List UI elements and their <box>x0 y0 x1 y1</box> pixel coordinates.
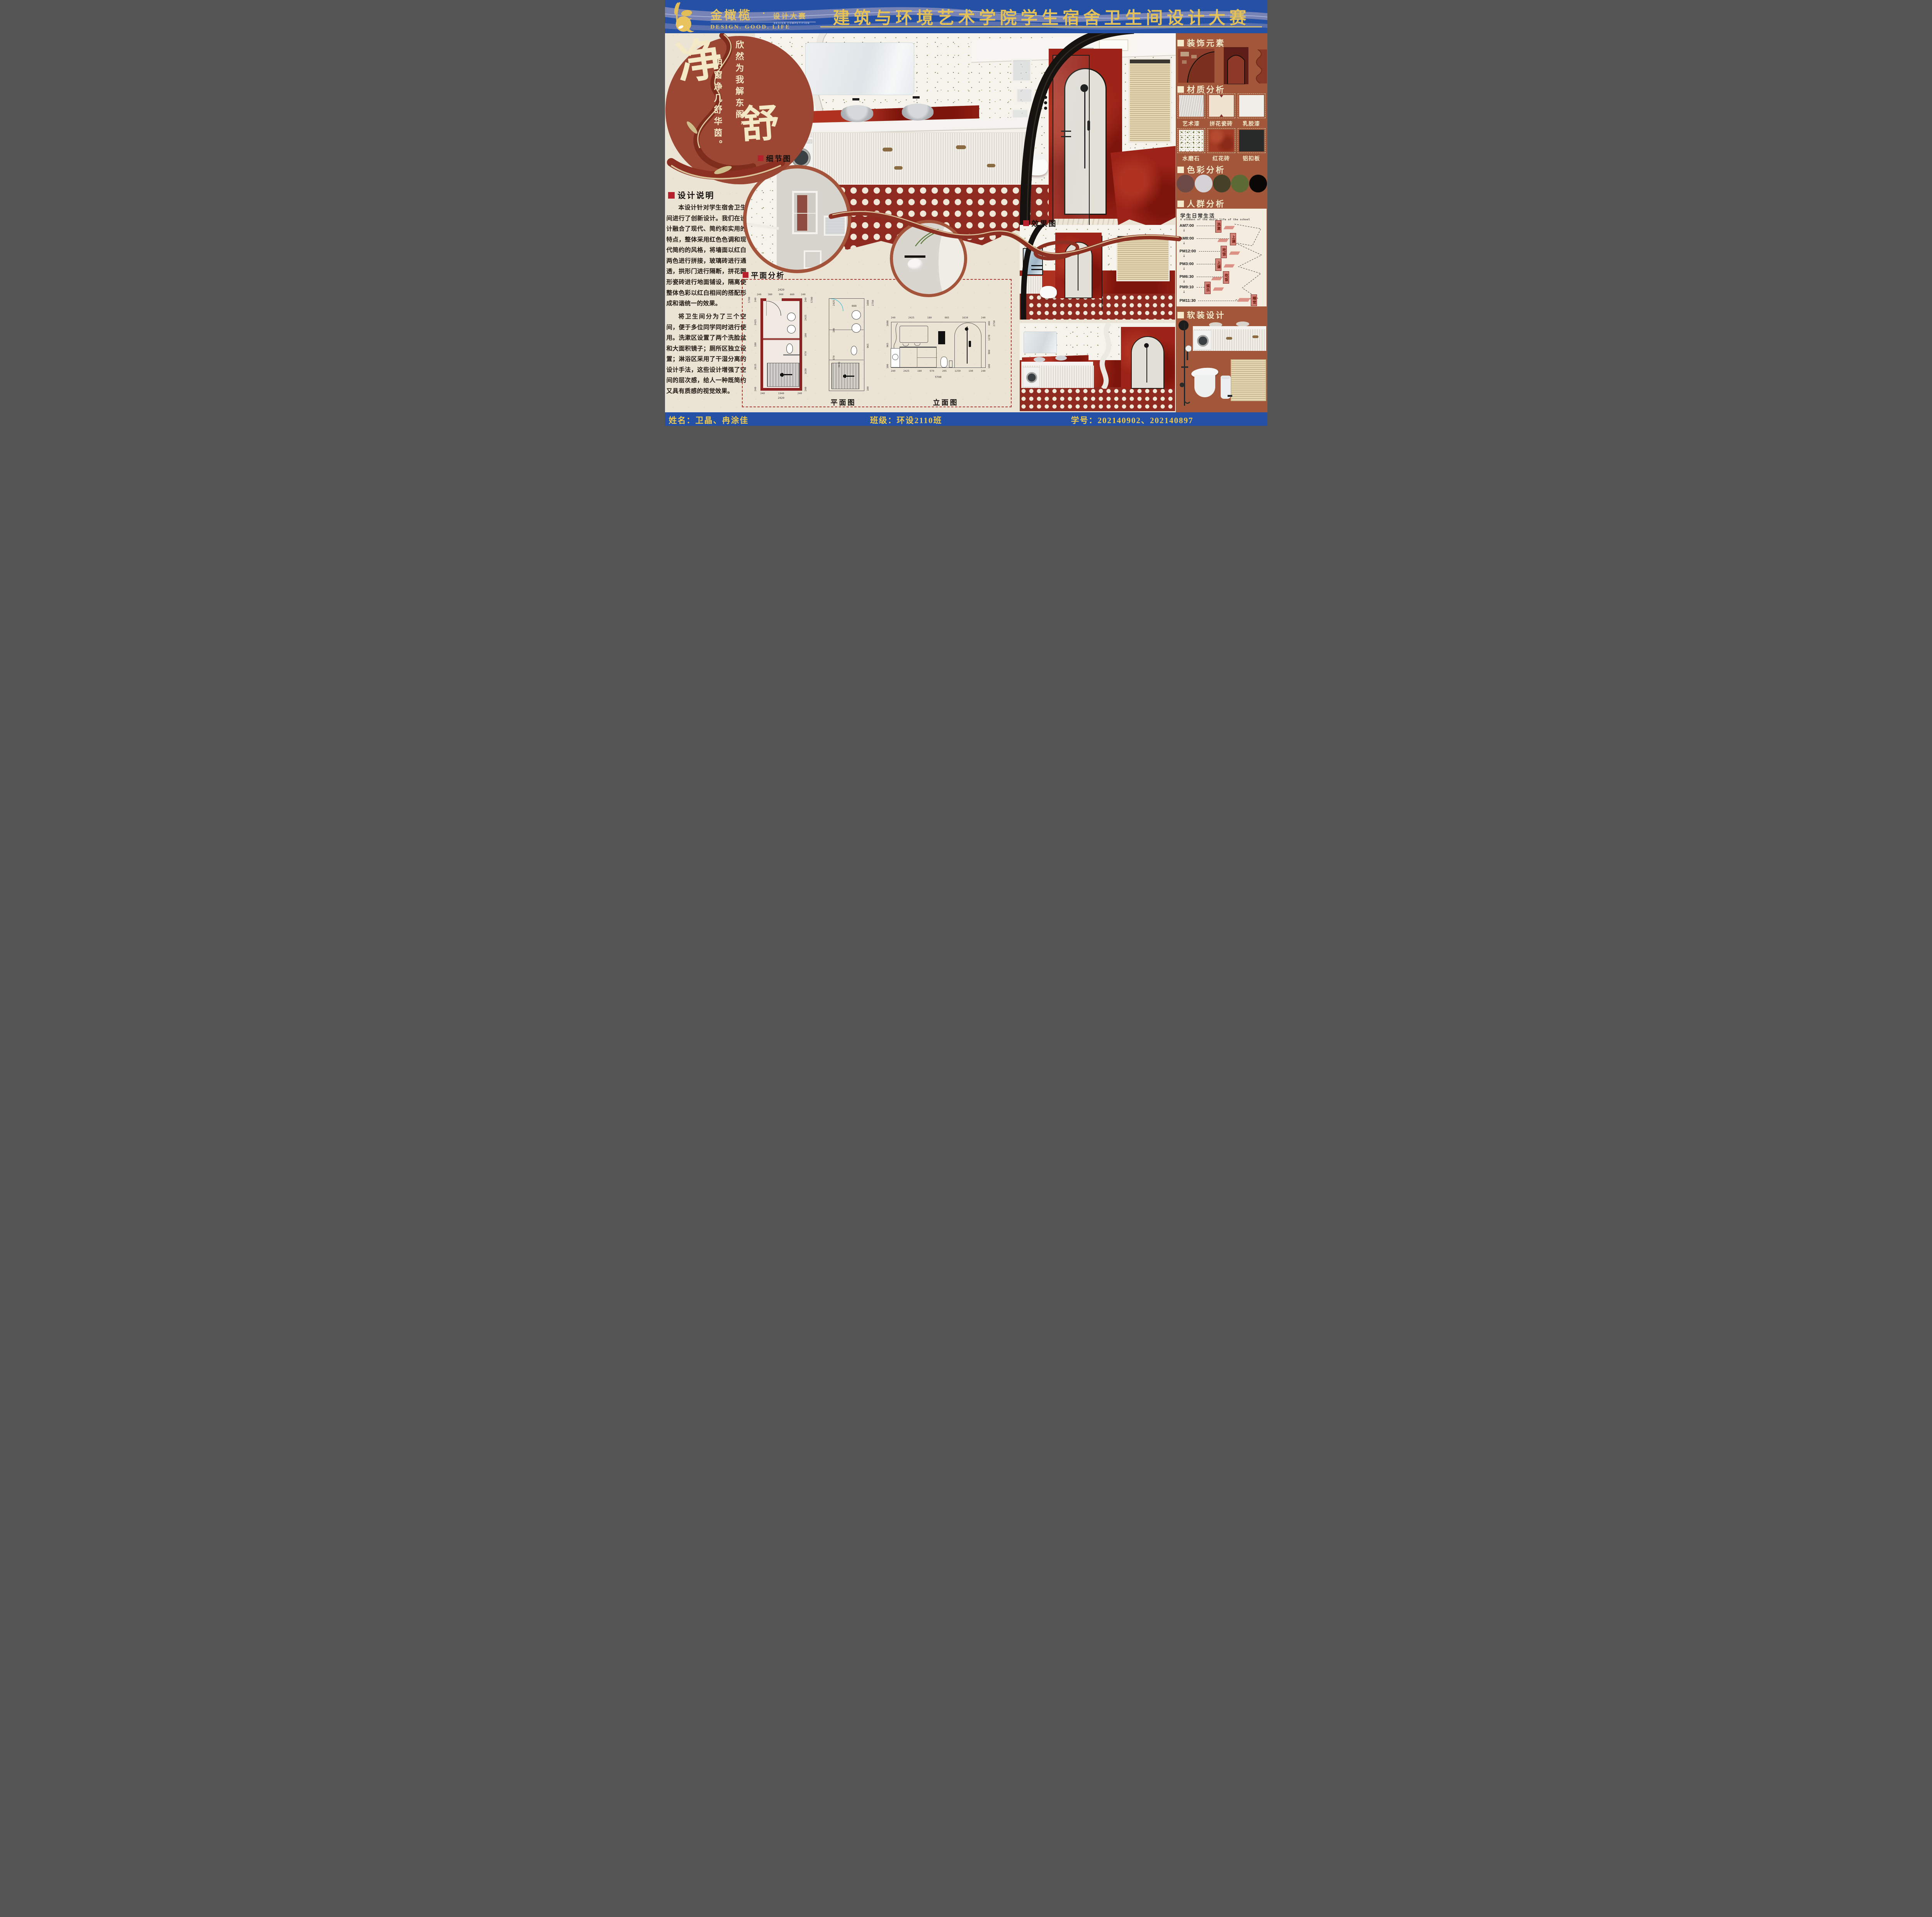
pictogram-mat <box>1223 226 1235 229</box>
dim-value: 2750 <box>871 300 874 306</box>
dim-value: 240 <box>804 387 807 391</box>
dim-value: 970 <box>832 356 835 360</box>
render-basin <box>1034 357 1045 362</box>
material-swatch-latex-paint <box>1238 94 1265 118</box>
hero-char-shu: 舒 <box>739 104 781 145</box>
colors-heading-bullet <box>1177 167 1184 173</box>
materials-heading-bullet <box>1177 86 1184 93</box>
dim-value: 240 <box>760 392 765 395</box>
el-washer <box>891 348 900 367</box>
el-right-chain: 4001270980100 <box>987 322 992 368</box>
schedule-connector <box>1197 264 1215 264</box>
plan-analysis-label-group: 平面分析 <box>743 270 785 280</box>
dim-value: 180 <box>917 369 922 373</box>
detail-label: 细节图 <box>766 153 792 163</box>
decor-arch-corner <box>1178 49 1214 83</box>
material-label: 红花砖 <box>1207 155 1235 162</box>
logo-tagline: DESIGN. GOOD. LIFE <box>711 24 791 31</box>
material-swatch-mosaic-tile <box>1207 94 1235 118</box>
soft-heading-bullet <box>1177 312 1184 318</box>
fp-right-chain: 24024251809701630240 <box>803 298 808 391</box>
el-bottom-total: 5700 <box>891 376 986 379</box>
schedule-time: PM6:30 <box>1180 274 1194 279</box>
palette-swatch <box>1213 175 1231 192</box>
floor-plan-drawing <box>760 298 802 391</box>
material-label: 水磨石 <box>1177 155 1205 162</box>
footer-student-id: 学号：202140902、202140897 <box>1071 414 1194 426</box>
dim-value: 2750 <box>993 320 996 327</box>
material-swatch-art-paint <box>1177 94 1205 118</box>
render-washer <box>1023 367 1040 387</box>
elevation-caption: 立面图 <box>929 397 963 407</box>
colors-heading-group: 色彩分析 <box>1177 164 1226 175</box>
dim-value: 5700 <box>748 297 751 303</box>
flow-arrow-icon: ↓ <box>1183 229 1186 233</box>
plan-basin <box>787 325 796 333</box>
pictogram-mat <box>1217 239 1228 242</box>
dim-value: 240 <box>754 387 757 391</box>
fp-left-total: 5700 <box>747 298 752 391</box>
product-pedal-bin <box>1221 376 1231 399</box>
elevation-drawing <box>891 322 986 368</box>
plan-toilet <box>786 344 793 354</box>
footer-bar: 姓名：卫晶、冉涂佳 班级：环设2110班 学号：202140902、202140… <box>665 412 1267 426</box>
dim-value: 900 <box>779 293 784 296</box>
pictogram-mat <box>1229 252 1240 255</box>
dim-value: 660 <box>790 293 794 296</box>
plan-caption: 平面图 <box>826 397 861 407</box>
design-notes-heading: 设计说明 <box>678 189 715 201</box>
plan-basin <box>852 323 861 333</box>
dim-value: 240 <box>804 298 807 302</box>
fp-left-chain: 24024251802615240 <box>753 298 758 391</box>
schedule-connector <box>1197 287 1204 287</box>
material-label: 艺术漆 <box>1177 120 1205 128</box>
plan-toilet <box>851 346 857 355</box>
design-notes-label-group: 设计说明 <box>668 189 715 201</box>
title-underline <box>820 26 1262 27</box>
mp-inner: 1630 <box>837 363 842 388</box>
paper-roll <box>908 259 923 270</box>
material-label: 铝扣板 <box>1238 155 1265 162</box>
dim-value: 1630 <box>804 368 807 374</box>
dim-value: 1250 <box>954 369 961 373</box>
flow-arrow-icon: ↓ <box>1183 254 1186 258</box>
schedule-activity: 上课 <box>1230 235 1236 243</box>
material-swatch-aluminum-panel <box>1238 128 1265 153</box>
pictogram-mat <box>1223 264 1235 267</box>
render-label-group: 效果图 <box>1023 218 1057 228</box>
dim-value: 1270 <box>988 335 991 341</box>
product-cabinet-handle <box>1226 337 1232 340</box>
product-toilet <box>1191 366 1219 400</box>
crowd-heading: 人群分析 <box>1187 198 1226 209</box>
header-bar: 金橄榄 · 设计大赛 DESIGN COMPETITION DESIGN. GO… <box>665 0 1267 33</box>
material-swatch-terrazzo <box>1177 128 1205 153</box>
dim-value: 965 <box>886 343 889 347</box>
render-photo-vanity <box>1020 323 1175 411</box>
plan-analysis-label: 平面分析 <box>751 270 785 280</box>
schedule-activity: 洗漱 <box>1216 223 1221 231</box>
schedule-connector <box>1199 251 1220 252</box>
footer-class: 班级：环设2110班 <box>870 414 942 426</box>
palette-swatch <box>1249 175 1267 192</box>
el-right-total: 2750 <box>992 322 997 368</box>
el-mirror <box>900 326 928 343</box>
plan-basin <box>787 313 796 321</box>
fp-bottom-total: 2420 <box>760 396 802 400</box>
paper-holder-bar <box>905 255 925 258</box>
product-washer <box>1194 330 1211 350</box>
dim-value: 180 <box>754 342 757 347</box>
dim-value: 2425 <box>754 319 757 325</box>
logo-brand: 金橄榄 <box>711 5 752 23</box>
render-photo-shower <box>1020 225 1175 320</box>
product-blinds <box>1231 359 1266 401</box>
detail-label-group: 细节图 <box>758 153 792 163</box>
decor-heading: 装饰元素 <box>1187 37 1226 49</box>
mp-right-chain: 1688965100 <box>866 301 870 390</box>
flow-arrow-icon: ↓ <box>1183 280 1186 284</box>
daily-schedule-card: 学生日常生活 A student of the daily life of th… <box>1177 209 1267 306</box>
el-bin <box>949 361 952 367</box>
design-notes-para1: 本设计针对学生宿舍卫生间进行了创新设计。我们在设计融合了现代、简约和实用的特点，… <box>667 202 747 309</box>
schedule-time: AM7:00 <box>1180 223 1194 228</box>
fp-top-chain: 240380900660240 <box>757 293 806 296</box>
schedule-time: PM9:10 <box>1180 285 1194 289</box>
schedule-time: PM12:00 <box>1180 249 1196 253</box>
mp-top: 660 <box>847 304 862 308</box>
dim-value: 965 <box>866 344 869 348</box>
schedule-activity: 娱乐 <box>1205 284 1210 292</box>
product-shower-set <box>1178 320 1191 409</box>
dim-value: 180 <box>927 316 932 319</box>
detail-photo-circle-holder <box>890 220 967 297</box>
dim-value: 2425 <box>804 315 807 321</box>
schedule-activity: 吃饭 <box>1223 274 1229 282</box>
schedule-activity-tag: 上课 <box>1215 259 1221 271</box>
schedule-activity-tag: 吃饭 <box>1223 271 1229 284</box>
render-basin <box>1055 356 1067 361</box>
dim-value: 5700 <box>810 297 813 303</box>
dim-value: 1688 <box>866 300 869 306</box>
pictogram-mat <box>1213 287 1224 291</box>
dim-value: 2425 <box>908 316 915 319</box>
design-notes-para2: 将卫生间分为了三个空间，便于多位同学同时进行使用。洗漱区设置了两个洗脸盆和大面积… <box>667 311 747 397</box>
colors-heading: 色彩分析 <box>1187 164 1226 175</box>
flow-arrow-icon: ↓ <box>1183 290 1186 294</box>
dim-value: 970 <box>930 369 934 373</box>
dim-value: 205 <box>942 369 947 373</box>
dim-value: 240 <box>981 316 986 319</box>
dim-value: 380 <box>768 293 772 296</box>
schedule-activity-tag: 吃饭 <box>1221 246 1227 258</box>
dim-value: 400 <box>988 321 991 326</box>
dim-value: 2425 <box>903 369 910 373</box>
dim-value: 1940 <box>778 392 784 395</box>
el-towel-rack <box>938 331 945 344</box>
el-top-chain: 24024251809851630240 <box>891 316 986 319</box>
material-swatch-red-brick <box>1207 128 1235 153</box>
schedule-activity: 睡觉 <box>1251 296 1257 304</box>
render-mirror <box>1024 332 1057 353</box>
schedule-activity-tag: 睡觉 <box>1251 294 1257 306</box>
plan-basin <box>852 310 861 320</box>
fp-bottom-chain: 2401940240 <box>760 392 802 395</box>
crowd-heading-group: 人群分析 <box>1177 198 1226 209</box>
page-title: 建筑与环境艺术学院学生宿舍卫生间设计大赛 <box>820 4 1264 29</box>
schedule-time: PM11:30 <box>1180 298 1196 303</box>
dim-value: 240 <box>891 369 896 373</box>
dim-value: 240 <box>754 298 757 302</box>
hero-verse-right: 欣然为我解东阁， <box>733 40 745 179</box>
dim-value: 240 <box>798 392 802 395</box>
dim-value: 180 <box>832 328 835 333</box>
dim-value: 970 <box>804 351 807 356</box>
dim-value: 240 <box>801 293 806 296</box>
schedule-activity-tag: 洗漱 <box>1215 220 1221 233</box>
soft-heading-group: 软装设计 <box>1177 309 1226 321</box>
dim-value: 1688 <box>886 320 889 327</box>
dim-value: 240 <box>757 293 762 296</box>
flow-arrow-icon: ↓ <box>1183 242 1186 245</box>
fp-right-total: 5700 <box>810 298 814 391</box>
detail-label-bullet <box>758 155 764 161</box>
design-notes-bullet <box>668 192 675 199</box>
crowd-heading-bullet <box>1177 201 1184 207</box>
product-countertop <box>1193 326 1266 329</box>
decor-scallop-panel <box>1254 49 1267 83</box>
pictogram-mat <box>1211 277 1222 280</box>
dim-value: 980 <box>988 350 991 354</box>
el-basin <box>903 344 909 346</box>
niche-tall <box>792 191 818 234</box>
schedule-activity-tag: 上课 <box>1230 233 1236 245</box>
render-label-bullet <box>1023 220 1029 226</box>
mp-left-chain: 2425180970 <box>832 301 836 359</box>
dim-value: 240 <box>981 369 986 373</box>
el-bottom-chain: 24024251809702051250190240 <box>891 369 986 373</box>
decor-arched-door <box>1224 47 1248 84</box>
niche-small <box>804 250 821 269</box>
dim-value: 240 <box>891 316 896 319</box>
el-left-chain: 1688965100 <box>886 322 890 368</box>
el-basin <box>914 343 920 346</box>
logo-subtitle: 设计大赛 <box>773 11 807 21</box>
material-label: 拼花瓷砖 <box>1207 120 1235 128</box>
hero-verse-left: 明窗净几舒华茵。 <box>711 59 724 206</box>
olive-logo-icon <box>668 2 704 32</box>
palette-swatch <box>1177 175 1194 192</box>
flow-arrow-icon: ↓ <box>1183 267 1186 271</box>
schedule-activity: 吃饭 <box>1221 248 1226 256</box>
dim-value: 2425 <box>832 300 835 306</box>
decor-heading-bullet <box>1177 40 1184 46</box>
pictogram-mat <box>1237 298 1250 302</box>
poster-canvas: 金橄榄 · 设计大赛 DESIGN COMPETITION DESIGN. GO… <box>665 0 1267 426</box>
schedule-activity-tag: 娱乐 <box>1204 282 1211 294</box>
el-vanity <box>900 347 937 367</box>
product-cabinet-handle <box>1252 335 1259 338</box>
render-label: 效果图 <box>1032 218 1057 228</box>
logo-dot: · <box>762 9 765 19</box>
decor-heading-group: 装饰元素 <box>1177 37 1226 49</box>
mp-right-total: 2750 <box>871 301 875 390</box>
dim-value: 180 <box>804 333 807 338</box>
dim-value: 1630 <box>838 362 841 368</box>
schedule-time: PM3:00 <box>1180 262 1194 266</box>
el-toilet <box>940 357 947 367</box>
plan-analysis-bullet <box>743 272 748 278</box>
fp-top-total: 2420 <box>760 288 802 291</box>
footer-name: 姓名：卫晶、冉涂佳 <box>669 414 749 426</box>
schedule-connector <box>1197 226 1214 226</box>
palette-swatch <box>1231 175 1249 192</box>
schedule-activity: 上课 <box>1216 261 1221 269</box>
schedule-time: AM8:00 <box>1180 236 1194 241</box>
palette-swatch <box>1195 175 1213 192</box>
dim-value: 1630 <box>962 316 968 319</box>
dim-value: 100 <box>886 364 889 369</box>
dim-value: 2615 <box>754 364 757 370</box>
dim-value: 100 <box>866 386 869 391</box>
niche-glassblock <box>824 216 846 236</box>
dim-value: 100 <box>988 364 991 369</box>
dim-value: 985 <box>945 316 949 319</box>
soft-heading: 软装设计 <box>1187 309 1226 321</box>
dim-value: 190 <box>969 369 973 373</box>
material-label: 乳胶漆 <box>1238 120 1265 128</box>
